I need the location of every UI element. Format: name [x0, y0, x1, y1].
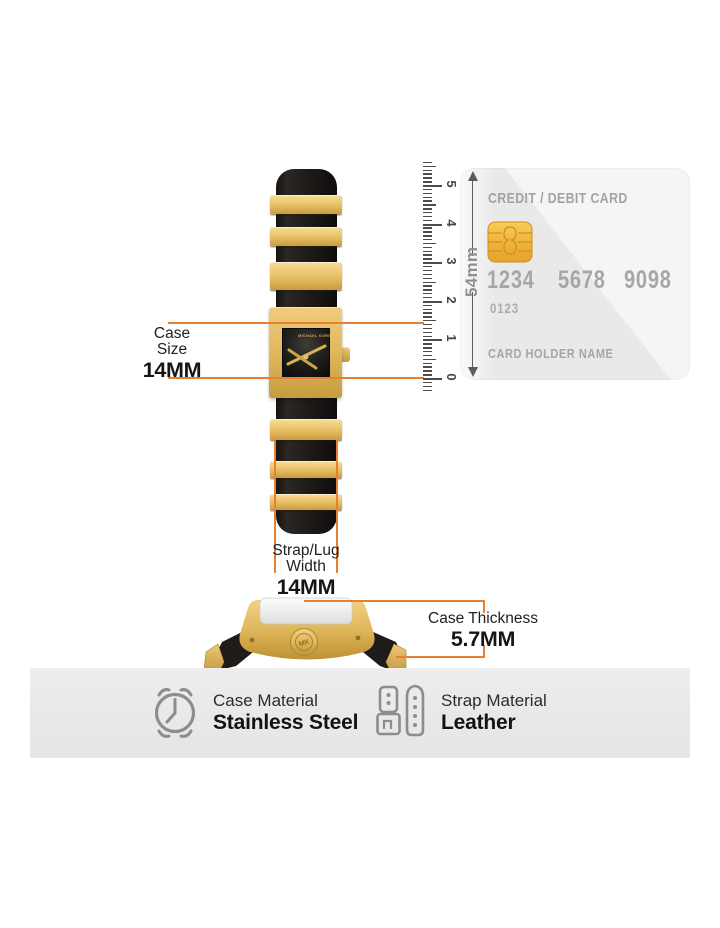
- ruler-tick: [423, 386, 432, 387]
- strap-gold-link: [270, 262, 342, 290]
- ruler-tick: [423, 224, 442, 226]
- ruler-tick: [423, 301, 442, 303]
- ruler-tick: [423, 235, 432, 236]
- arrow-down-icon: [468, 367, 478, 377]
- case-size-line-top: [168, 322, 424, 324]
- ruler-tick: [423, 309, 432, 310]
- ruler-tick: [423, 278, 432, 279]
- ruler-tick: [423, 162, 432, 163]
- ruler-tick: [423, 185, 442, 187]
- strap-gold-link: [270, 461, 342, 478]
- strap-gold-link: [270, 494, 342, 510]
- case-size-label: Size: [128, 342, 216, 358]
- ruler-tick: [423, 212, 432, 213]
- card-title: CREDIT / DEBIT CARD: [488, 190, 628, 207]
- case-material-item: Case Material Stainless Steel: [148, 668, 358, 758]
- card-number-group: 5678: [558, 266, 606, 295]
- ruler-tick: [423, 324, 432, 325]
- watch-crown: [341, 347, 350, 362]
- arrow-up-icon: [468, 171, 478, 181]
- ruler-tick: [423, 332, 432, 333]
- ruler-tick: [423, 258, 432, 259]
- ruler-number: 4: [444, 216, 458, 230]
- ruler-tick: [423, 374, 432, 375]
- case-thickness-label: Case Thickness: [410, 611, 556, 627]
- ruler-tick: [423, 243, 436, 244]
- case-material-label: Case Material: [213, 691, 358, 711]
- ruler-tick: [423, 390, 432, 391]
- ruler-tick: [423, 312, 432, 313]
- ruler-tick: [423, 251, 432, 252]
- ruler-tick: [423, 370, 432, 371]
- card-chip-icon: [487, 221, 533, 263]
- ruler-tick: [423, 181, 432, 182]
- case-size-annotation: Case Size 14MM: [128, 326, 216, 380]
- strap-gold-link: [270, 227, 342, 246]
- ruler-tick: [423, 359, 436, 360]
- watch-side-view: MK: [198, 590, 446, 678]
- thickness-line-top: [304, 600, 485, 602]
- ruler-tick: [423, 254, 432, 255]
- ruler-tick: [423, 177, 432, 178]
- ruler-tick: [423, 227, 432, 228]
- ruler-tick: [423, 366, 432, 367]
- ruler-tick: [423, 262, 442, 264]
- strap-material-value: Leather: [441, 711, 547, 735]
- ruler-tick: [423, 197, 432, 198]
- card-height-arrow: [472, 180, 474, 256]
- watch-dimensions-infographic: MICHAEL KORS Case Size 14MM Strap/Lug Wi…: [0, 0, 720, 928]
- ruler-tick: [423, 166, 436, 167]
- ruler-tick: [423, 305, 432, 306]
- watch-hands-icon: [283, 329, 331, 379]
- ruler-tick: [423, 320, 436, 321]
- card-number-group: 1234: [487, 266, 535, 295]
- ruler-tick: [423, 200, 432, 201]
- strap-material-item: Strap Material Leather: [374, 668, 547, 758]
- ruler-tick: [423, 351, 432, 352]
- ruler-tick: [423, 173, 432, 174]
- ruler-tick: [423, 297, 432, 298]
- strap-material-label: Strap Material: [441, 691, 547, 711]
- ruler-tick: [423, 220, 432, 221]
- ruler-tick: [423, 293, 432, 294]
- ruler-tick: [423, 204, 436, 205]
- case-material-value: Stainless Steel: [213, 711, 358, 735]
- ruler-tick: [423, 285, 432, 286]
- strap-gold-link: [270, 419, 342, 440]
- ruler-tick: [423, 266, 432, 267]
- card-holder-label: CARD HOLDER NAME: [488, 346, 613, 361]
- ruler-tick: [423, 378, 442, 380]
- ruler-number: 1: [444, 331, 458, 345]
- ruler-tick: [423, 231, 432, 232]
- ruler-tick: [423, 363, 432, 364]
- ruler-tick: [423, 274, 432, 275]
- ruler-tick: [423, 193, 432, 194]
- ruler-tick: [423, 170, 432, 171]
- credit-card: 54mm CREDIT / DEBIT CARD 1234 5678 9098 …: [460, 168, 690, 380]
- ruler-tick: [423, 289, 432, 290]
- strap-width-label: Width: [248, 559, 364, 575]
- thickness-line-bottom: [396, 656, 485, 658]
- strap-gold-link: [270, 195, 342, 214]
- materials-band: Case Material Stainless Steel Strap Mate…: [30, 668, 690, 758]
- ruler-tick: [423, 355, 432, 356]
- ruler-number: 5: [444, 177, 458, 191]
- card-date: 0123: [490, 301, 519, 316]
- watch-dial: MICHAEL KORS: [282, 328, 330, 378]
- strap-width-label: Strap/Lug: [248, 543, 364, 559]
- ruler-tick: [423, 347, 432, 348]
- ruler-tick: [423, 282, 436, 283]
- watch-icon: [148, 684, 202, 742]
- ruler-tick: [423, 343, 432, 344]
- ruler-tick: [423, 216, 432, 217]
- strap-icon: [374, 682, 430, 744]
- card-height-label: 54mm: [454, 251, 490, 297]
- strap-width-annotation: Strap/Lug Width 14MM: [248, 543, 364, 597]
- case-size-value: 14MM: [128, 360, 216, 380]
- ruler-tick: [423, 270, 432, 271]
- ruler-tick: [423, 328, 432, 329]
- case-thickness-annotation: Case Thickness 5.7MM: [410, 611, 556, 649]
- case-thickness-value: 5.7MM: [410, 629, 556, 649]
- ruler-tick: [423, 336, 432, 337]
- ruler-tick: [423, 239, 432, 240]
- ruler-tick: [423, 382, 432, 383]
- card-height-arrow: [472, 292, 474, 368]
- ruler-number: 0: [444, 370, 458, 384]
- ruler-tick: [423, 339, 442, 341]
- ruler-tick: [423, 208, 432, 209]
- ruler-tick: [423, 316, 432, 317]
- ruler-tick: [423, 189, 432, 190]
- ruler-tick: [423, 247, 432, 248]
- card-number-group: 9098: [624, 266, 672, 295]
- case-size-label: Case: [128, 326, 216, 342]
